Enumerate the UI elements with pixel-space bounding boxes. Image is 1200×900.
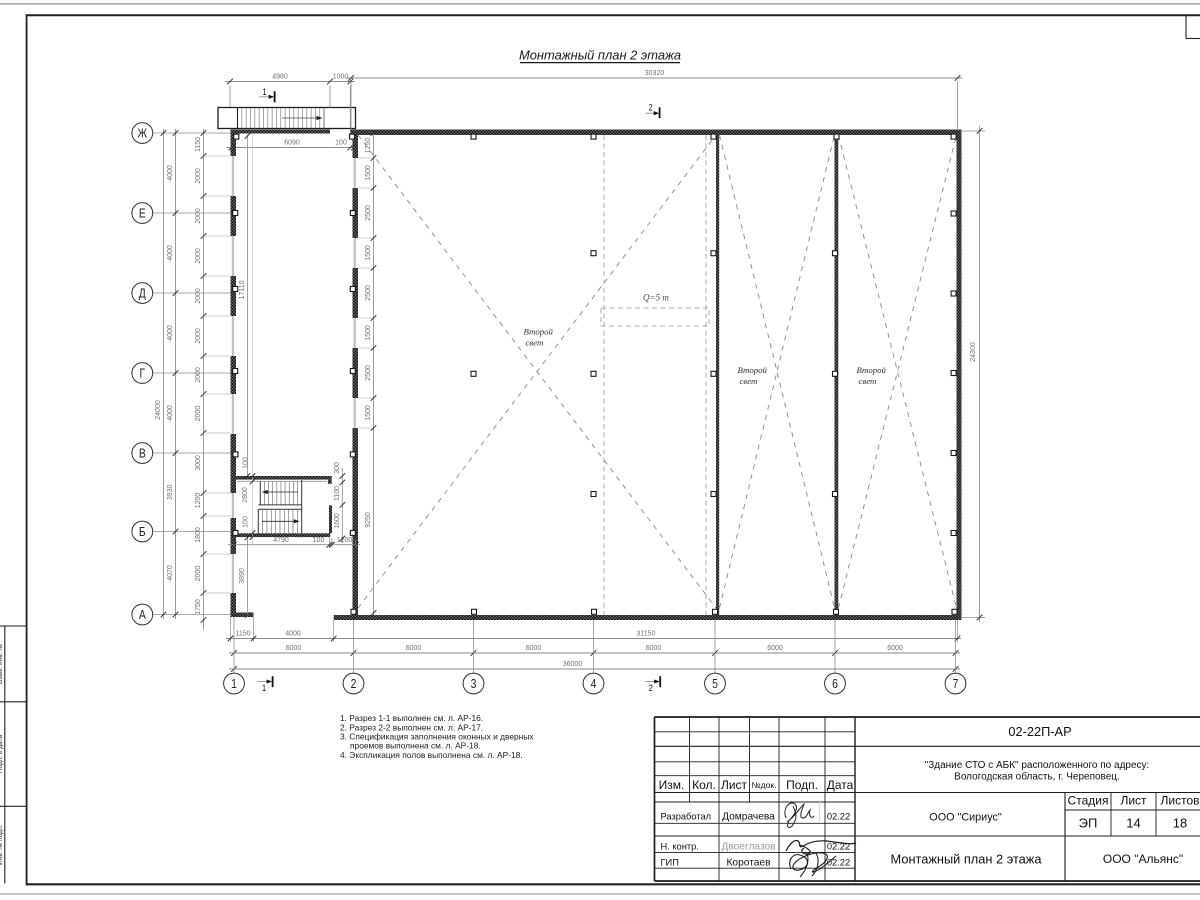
- svg-text:Домрачева: Домрачева: [722, 812, 775, 823]
- svg-text:1100: 1100: [334, 486, 341, 501]
- svg-text:100: 100: [242, 457, 249, 469]
- svg-text:31150: 31150: [637, 631, 656, 638]
- svg-text:Г: Г: [139, 367, 145, 381]
- svg-text:100: 100: [335, 140, 347, 147]
- svg-text:свет: свет: [526, 338, 544, 348]
- svg-text:24000: 24000: [155, 400, 162, 420]
- svg-text:1: 1: [262, 682, 266, 693]
- svg-text:30320: 30320: [645, 70, 665, 77]
- svg-text:2000: 2000: [195, 168, 202, 184]
- svg-text:1150: 1150: [235, 631, 250, 638]
- svg-text:Лист: Лист: [1120, 794, 1147, 808]
- svg-text:Д: Д: [139, 287, 146, 301]
- svg-text:Изм.: Изм.: [659, 778, 685, 792]
- svg-text:Лист: Лист: [721, 778, 748, 792]
- svg-text:2500: 2500: [365, 205, 372, 221]
- svg-text:ГИП: ГИП: [661, 857, 679, 867]
- svg-text:24300: 24300: [970, 342, 977, 362]
- svg-text:4000: 4000: [285, 631, 301, 638]
- svg-text:6000: 6000: [646, 645, 662, 652]
- svg-text:100: 100: [242, 516, 249, 528]
- svg-text:02.22: 02.22: [827, 858, 850, 868]
- svg-text:2000: 2000: [195, 367, 202, 383]
- svg-text:Е: Е: [139, 207, 146, 221]
- svg-text:свет: свет: [740, 376, 758, 386]
- svg-text:2000: 2000: [195, 406, 202, 422]
- svg-text:Кол.: Кол.: [692, 778, 716, 792]
- svg-text:1600: 1600: [334, 513, 341, 529]
- svg-text:6000: 6000: [887, 645, 903, 652]
- svg-text:6: 6: [832, 677, 838, 691]
- svg-text:Q=5 т: Q=5 т: [643, 293, 669, 303]
- svg-text:1500: 1500: [365, 245, 372, 261]
- svg-text:2000: 2000: [195, 566, 202, 582]
- svg-text:1: 1: [262, 86, 266, 97]
- svg-text:2800: 2800: [242, 487, 249, 503]
- svg-text:ООО "Альянс": ООО "Альянс": [1103, 852, 1183, 866]
- svg-text:Второй: Второй: [738, 365, 768, 375]
- svg-text:2000: 2000: [195, 288, 202, 304]
- svg-text:Второй: Второй: [857, 365, 887, 375]
- svg-text:свет: свет: [859, 376, 877, 386]
- svg-text:1800: 1800: [195, 527, 202, 543]
- svg-text:14: 14: [1126, 816, 1140, 831]
- svg-text:3: 3: [471, 677, 477, 691]
- svg-text:Коротаев: Коротаев: [726, 858, 770, 869]
- svg-text:6000: 6000: [767, 645, 783, 652]
- svg-text:3930: 3930: [167, 484, 174, 500]
- svg-text:4000: 4000: [167, 245, 174, 261]
- svg-text:4000: 4000: [167, 325, 174, 341]
- svg-text:17110: 17110: [239, 280, 246, 299]
- svg-text:4070: 4070: [167, 565, 174, 581]
- svg-text:4790: 4790: [273, 537, 289, 544]
- svg-text:1500: 1500: [365, 325, 372, 341]
- svg-text:Б: Б: [139, 525, 146, 539]
- svg-text:7: 7: [953, 677, 959, 691]
- svg-text:Ж: Ж: [137, 127, 147, 141]
- svg-text:4000: 4000: [167, 405, 174, 421]
- svg-text:Вологодская область, г. Черепо: Вологодская область, г. Череповец.: [954, 770, 1120, 782]
- svg-text:9250: 9250: [365, 512, 372, 528]
- svg-text:1000: 1000: [333, 74, 349, 81]
- svg-text:Двоеглазов: Двоеглазов: [721, 842, 775, 853]
- svg-text:Разработал: Разработал: [661, 811, 712, 821]
- svg-text:2: 2: [351, 677, 357, 691]
- svg-text:6000: 6000: [286, 645, 302, 652]
- svg-text:3890: 3890: [239, 568, 246, 584]
- svg-text:02-22П-АР: 02-22П-АР: [1008, 724, 1071, 739]
- svg-text:Листов: Листов: [1161, 794, 1200, 808]
- svg-text:6090: 6090: [284, 140, 300, 147]
- svg-text:02.22: 02.22: [827, 812, 850, 822]
- svg-text:ООО "Сириус": ООО "Сириус": [929, 812, 1002, 824]
- svg-text:2500: 2500: [365, 285, 372, 301]
- svg-text:6000: 6000: [526, 645, 542, 652]
- svg-text:100: 100: [313, 537, 325, 544]
- svg-text:4: 4: [591, 677, 597, 691]
- svg-text:ЭП: ЭП: [1079, 816, 1098, 831]
- svg-text:Монтажный план 2 этажа: Монтажный план 2 этажа: [519, 48, 681, 63]
- svg-text:1500: 1500: [365, 165, 372, 181]
- svg-text:4980: 4980: [272, 74, 288, 81]
- svg-text:Дата: Дата: [827, 778, 854, 792]
- svg-text:5: 5: [712, 677, 718, 691]
- svg-text:"Здание СТО с АБК" расположенн: "Здание СТО с АБК" расположенного по адр…: [925, 760, 1150, 771]
- svg-text:1200: 1200: [337, 537, 353, 544]
- svg-text:2000: 2000: [195, 248, 202, 264]
- svg-text:Взам. инв. №: Взам. инв. №: [0, 644, 4, 684]
- svg-text:Монтажный план 2 этажа: Монтажный план 2 этажа: [891, 851, 1043, 866]
- svg-text:2500: 2500: [365, 365, 372, 381]
- svg-text:1750: 1750: [195, 599, 202, 615]
- svg-text:3000: 3000: [195, 455, 202, 471]
- svg-text:Н. контр.: Н. контр.: [661, 841, 699, 851]
- svg-text:2: 2: [649, 682, 653, 693]
- svg-text:1150: 1150: [195, 137, 202, 152]
- svg-text:2: 2: [648, 102, 652, 113]
- svg-text:В: В: [139, 447, 146, 461]
- svg-text:1200: 1200: [195, 493, 202, 509]
- svg-text:Подп. и дата: Подп. и дата: [0, 734, 4, 773]
- svg-text:№док.: №док.: [752, 780, 777, 790]
- svg-text:Инв. № подл.: Инв. № подл.: [0, 824, 4, 865]
- svg-text:6000: 6000: [406, 645, 422, 652]
- svg-text:Подп.: Подп.: [786, 778, 818, 792]
- svg-text:4000: 4000: [167, 165, 174, 181]
- svg-text:4. Экспликация полов выполнена: 4. Экспликация полов выполнена см. л. АР…: [340, 750, 523, 760]
- svg-text:А: А: [139, 608, 146, 622]
- svg-text:1250: 1250: [365, 138, 372, 154]
- svg-text:2000: 2000: [195, 208, 202, 224]
- svg-text:300: 300: [334, 462, 341, 474]
- svg-text:18: 18: [1173, 816, 1187, 831]
- svg-text:Второй: Второй: [524, 327, 554, 337]
- svg-text:Стадия: Стадия: [1068, 794, 1109, 808]
- svg-text:36000: 36000: [563, 661, 583, 668]
- svg-text:2000: 2000: [195, 328, 202, 344]
- svg-text:1: 1: [231, 677, 237, 691]
- svg-text:1500: 1500: [365, 405, 372, 421]
